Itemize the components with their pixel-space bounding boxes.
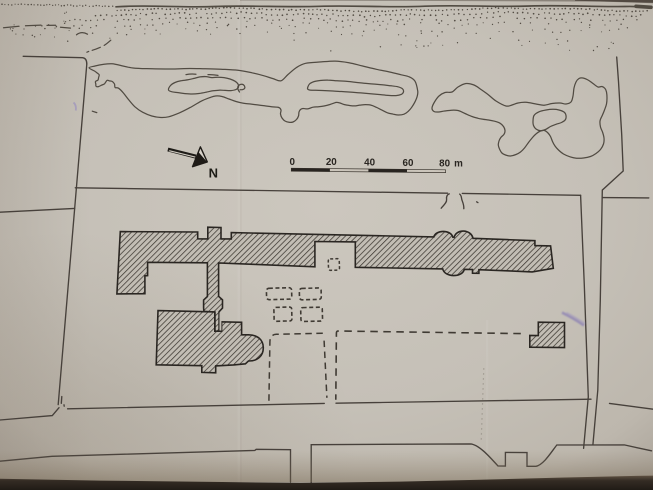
svg-text:20: 20 — [326, 157, 337, 168]
svg-text:60: 60 — [403, 158, 414, 169]
svg-text:0: 0 — [289, 157, 295, 168]
svg-text:40: 40 — [364, 158, 375, 169]
svg-text:N: N — [209, 166, 218, 181]
svg-text:m: m — [454, 158, 463, 169]
svg-text:80: 80 — [439, 158, 450, 169]
